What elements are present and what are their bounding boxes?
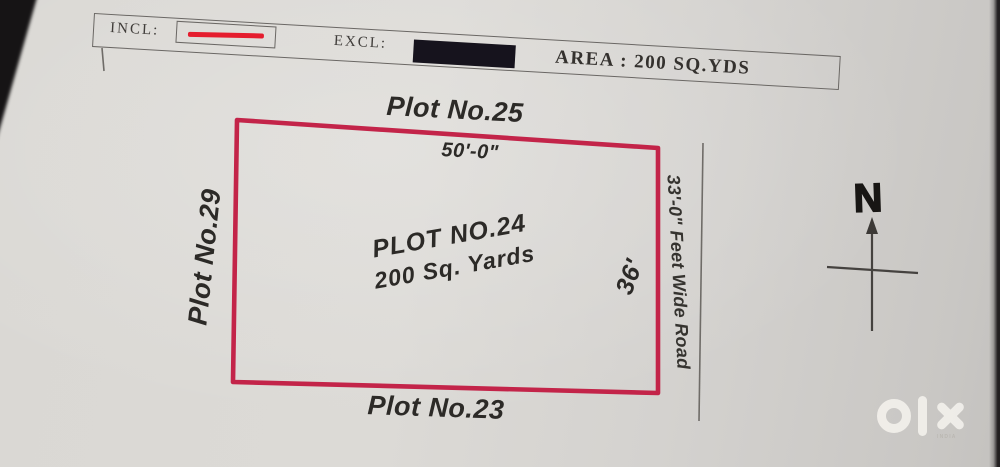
road-label: 33'-0" Feet Wide Road [662, 174, 693, 370]
plot-plan-photo: INCL: EXCL: AREA : 200 SQ.YDS Plot No.25… [0, 0, 1000, 467]
excl-sample-box [413, 39, 516, 68]
road-boundary-line [699, 143, 703, 421]
legend-edge-tick [102, 48, 104, 71]
legend-strip: INCL: EXCL: AREA : 200 SQ.YDS [92, 13, 841, 90]
olx-watermark-logo: INDIA [877, 392, 966, 440]
incl-sample-line [188, 31, 264, 38]
compass-horizontal-line [827, 267, 918, 273]
photo-edge-shadow [0, 0, 38, 142]
left-neighbor-label: Plot No.29 [182, 187, 227, 327]
photo-edge-right [989, 0, 1000, 467]
area-label: AREA : 200 SQ.YDS [555, 47, 751, 80]
bottom-neighbor-label: Plot No.23 [367, 390, 505, 426]
incl-sample-box [175, 21, 276, 49]
olx-x-icon [934, 399, 966, 433]
excl-label: EXCL: [333, 33, 387, 53]
north-label: N [853, 176, 883, 222]
olx-bar-icon [918, 396, 927, 436]
plot-center-text: PLOT NO.24 200 Sq. Yards [367, 207, 538, 296]
top-neighbor-label: Plot No.25 [386, 91, 524, 129]
olx-o-icon [877, 399, 911, 433]
right-dimension-label: 36' [610, 255, 649, 298]
olx-sub-label: INDIA [937, 434, 957, 440]
top-dimension-label: 50'-0" [441, 139, 499, 165]
incl-label: INCL: [110, 20, 160, 40]
